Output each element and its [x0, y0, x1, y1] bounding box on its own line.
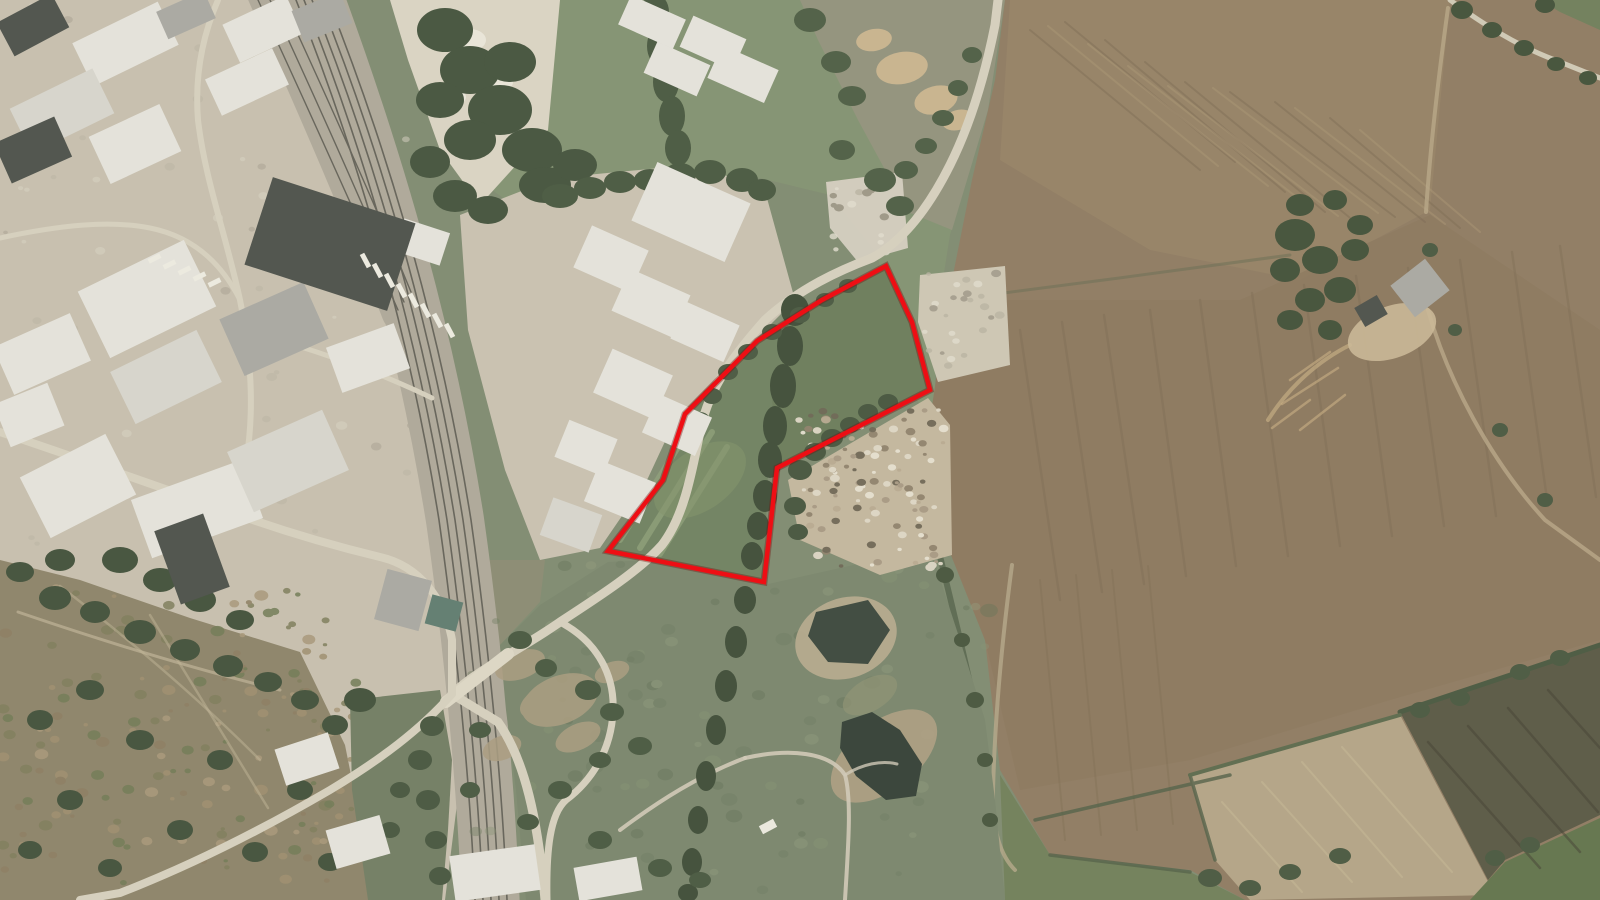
aerial-map-viewport[interactable] [0, 0, 1600, 900]
satellite-image [0, 0, 1600, 900]
atmospheric-haze [0, 0, 1600, 900]
